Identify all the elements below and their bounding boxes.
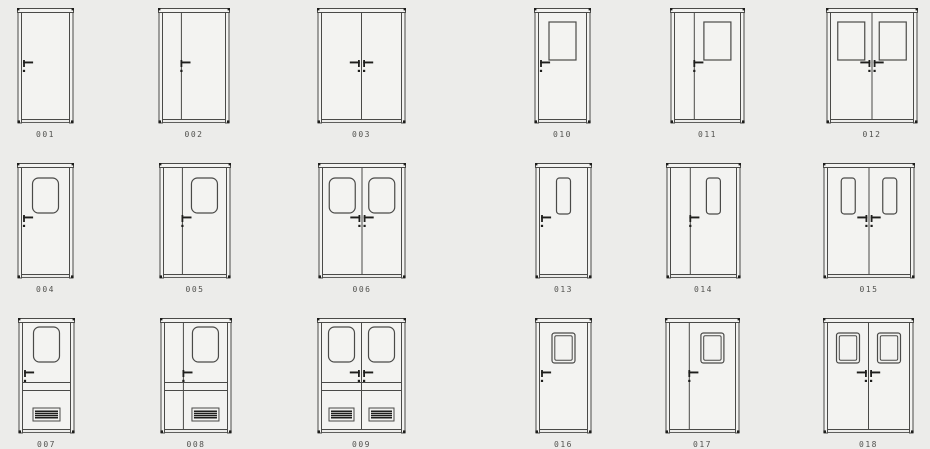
door-drawing-018 [823, 318, 914, 436]
door-thumbnail-007: 007 [18, 318, 75, 449]
door-thumbnail-011: 011 [670, 8, 745, 139]
door-thumbnail-016: 016 [535, 318, 592, 449]
door-drawing-004 [17, 163, 74, 281]
door-thumbnail-006: 006 [318, 163, 406, 294]
door-drawing-011 [670, 8, 745, 126]
door-label: 018 [823, 440, 914, 449]
door-leaf [540, 323, 588, 430]
door-drawing-009 [317, 318, 406, 436]
door-leaf [540, 168, 588, 275]
door-label: 009 [317, 440, 406, 449]
door-drawing-003 [317, 8, 406, 126]
door-label: 014 [666, 285, 741, 294]
door-label: 007 [18, 440, 75, 449]
door-label: 003 [317, 130, 406, 139]
door-label: 004 [17, 285, 74, 294]
door-drawing-015 [823, 163, 915, 281]
door-thumbnail-008: 008 [160, 318, 232, 449]
door-thumbnail-002: 002 [158, 8, 230, 139]
door-thumbnail-015: 015 [823, 163, 915, 294]
door-drawing-002 [158, 8, 230, 126]
door-thumbnail-001: 001 [17, 8, 74, 139]
door-drawing-012 [826, 8, 918, 126]
door-label: 016 [535, 440, 592, 449]
door-label: 001 [17, 130, 74, 139]
door-thumbnail-014: 014 [666, 163, 741, 294]
door-drawing-006 [318, 163, 406, 281]
door-thumbnail-010: 010 [534, 8, 591, 139]
door-catalog-sheet: 001 002 003 010 011 012 004 005 006 01 [0, 0, 930, 449]
door-thumbnail-005: 005 [159, 163, 231, 294]
door-leaf [163, 13, 226, 120]
door-drawing-007 [18, 318, 75, 436]
door-thumbnail-012: 012 [826, 8, 918, 139]
door-thumbnail-009: 009 [317, 318, 406, 449]
door-thumbnail-003: 003 [317, 8, 406, 139]
door-drawing-010 [534, 8, 591, 126]
door-drawing-016 [535, 318, 592, 436]
door-drawing-017 [665, 318, 740, 436]
door-label: 008 [160, 440, 232, 449]
door-leaf [539, 13, 587, 120]
door-label: 012 [826, 130, 918, 139]
door-leaf [22, 13, 70, 120]
door-label: 002 [158, 130, 230, 139]
door-label: 006 [318, 285, 406, 294]
door-label: 010 [534, 130, 591, 139]
door-drawing-013 [535, 163, 592, 281]
door-drawing-014 [666, 163, 741, 281]
door-thumbnail-013: 013 [535, 163, 592, 294]
door-leaf [670, 323, 736, 430]
door-drawing-008 [160, 318, 232, 436]
door-thumbnail-018: 018 [823, 318, 914, 449]
door-label: 011 [670, 130, 745, 139]
door-leaf [22, 168, 70, 275]
door-thumbnail-004: 004 [17, 163, 74, 294]
door-label: 005 [159, 285, 231, 294]
door-label: 015 [823, 285, 915, 294]
door-thumbnail-017: 017 [665, 318, 740, 449]
door-label: 017 [665, 440, 740, 449]
door-leaf [671, 168, 737, 275]
door-label: 013 [535, 285, 592, 294]
door-drawing-005 [159, 163, 231, 281]
door-drawing-001 [17, 8, 74, 126]
